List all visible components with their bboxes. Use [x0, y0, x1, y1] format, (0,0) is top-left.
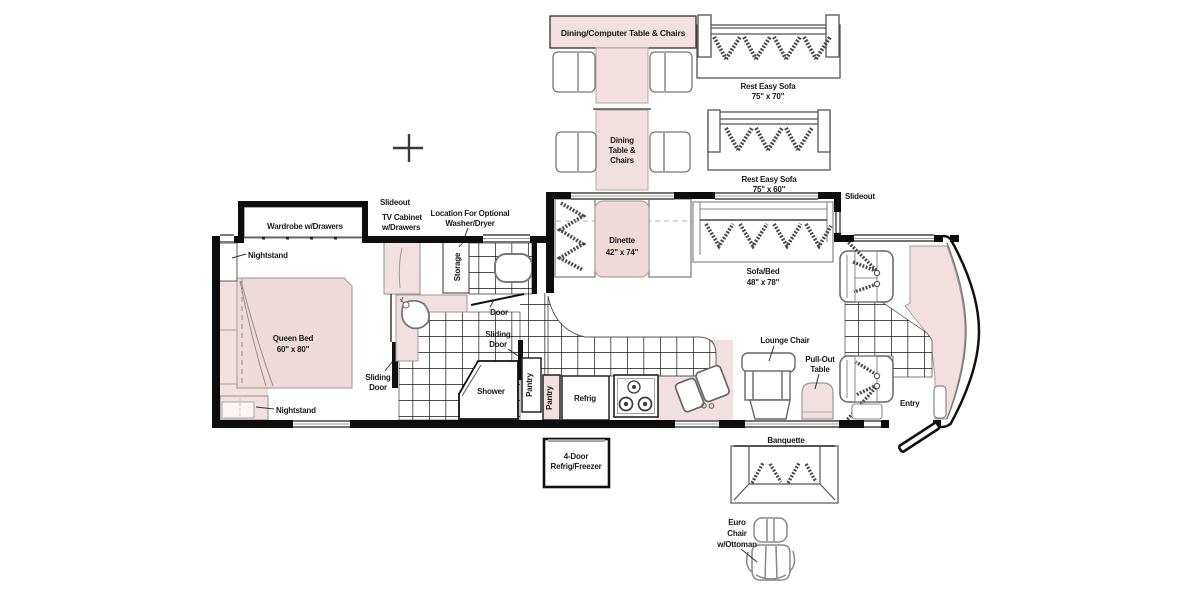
- svg-text:Location For Optional: Location For Optional: [431, 209, 510, 218]
- svg-text:Banquette: Banquette: [767, 436, 805, 445]
- svg-text:Refrig/Freezer: Refrig/Freezer: [551, 462, 602, 471]
- svg-text:Door: Door: [490, 308, 508, 317]
- svg-text:Refrig: Refrig: [574, 394, 596, 403]
- svg-text:Table: Table: [810, 365, 830, 374]
- svg-text:Storage: Storage: [453, 252, 462, 281]
- svg-text:Sliding: Sliding: [365, 373, 391, 382]
- svg-text:Pantry: Pantry: [525, 372, 534, 396]
- svg-text:Chair: Chair: [727, 529, 747, 538]
- svg-text:Door: Door: [369, 383, 387, 392]
- svg-text:Rest Easy Sofa: Rest Easy Sofa: [740, 82, 796, 91]
- svg-text:w/Drawers: w/Drawers: [381, 223, 421, 232]
- svg-text:Dinette: Dinette: [609, 236, 635, 245]
- svg-text:Sofa/Bed: Sofa/Bed: [746, 267, 779, 276]
- svg-text:Wardrobe w/Drawers: Wardrobe w/Drawers: [267, 222, 343, 231]
- svg-text:Sliding: Sliding: [485, 330, 511, 339]
- svg-text:Pantry: Pantry: [545, 385, 554, 409]
- svg-text:42" x 74": 42" x 74": [606, 248, 639, 257]
- svg-text:Slideout: Slideout: [380, 198, 410, 207]
- svg-text:Chairs: Chairs: [610, 156, 634, 165]
- svg-text:4-Door: 4-Door: [564, 452, 589, 461]
- svg-text:60" x 80": 60" x 80": [277, 345, 310, 354]
- svg-text:75" x 70": 75" x 70": [752, 92, 785, 101]
- svg-text:w/Ottoman: w/Ottoman: [716, 540, 757, 549]
- svg-text:Nightstand: Nightstand: [248, 251, 288, 260]
- svg-text:Door: Door: [489, 340, 507, 349]
- svg-text:Rest Easy Sofa: Rest Easy Sofa: [741, 175, 797, 184]
- svg-text:Washer/Dryer: Washer/Dryer: [445, 219, 494, 228]
- svg-text:Lounge Chair: Lounge Chair: [760, 336, 809, 345]
- svg-text:Dining/Computer Table & Chairs: Dining/Computer Table & Chairs: [561, 28, 686, 38]
- svg-text:Nightstand: Nightstand: [276, 406, 316, 415]
- svg-text:Queen Bed: Queen Bed: [273, 334, 314, 343]
- svg-text:Pull-Out: Pull-Out: [805, 355, 835, 364]
- svg-text:Entry: Entry: [900, 399, 920, 408]
- svg-text:Table &: Table &: [609, 146, 636, 155]
- svg-text:Shower: Shower: [477, 387, 505, 396]
- svg-text:Slideout: Slideout: [845, 192, 875, 201]
- svg-text:48" x 78": 48" x 78": [747, 278, 780, 287]
- svg-text:Euro: Euro: [728, 518, 746, 527]
- svg-text:Dining: Dining: [610, 136, 634, 145]
- svg-text:TV Cabinet: TV Cabinet: [382, 213, 422, 222]
